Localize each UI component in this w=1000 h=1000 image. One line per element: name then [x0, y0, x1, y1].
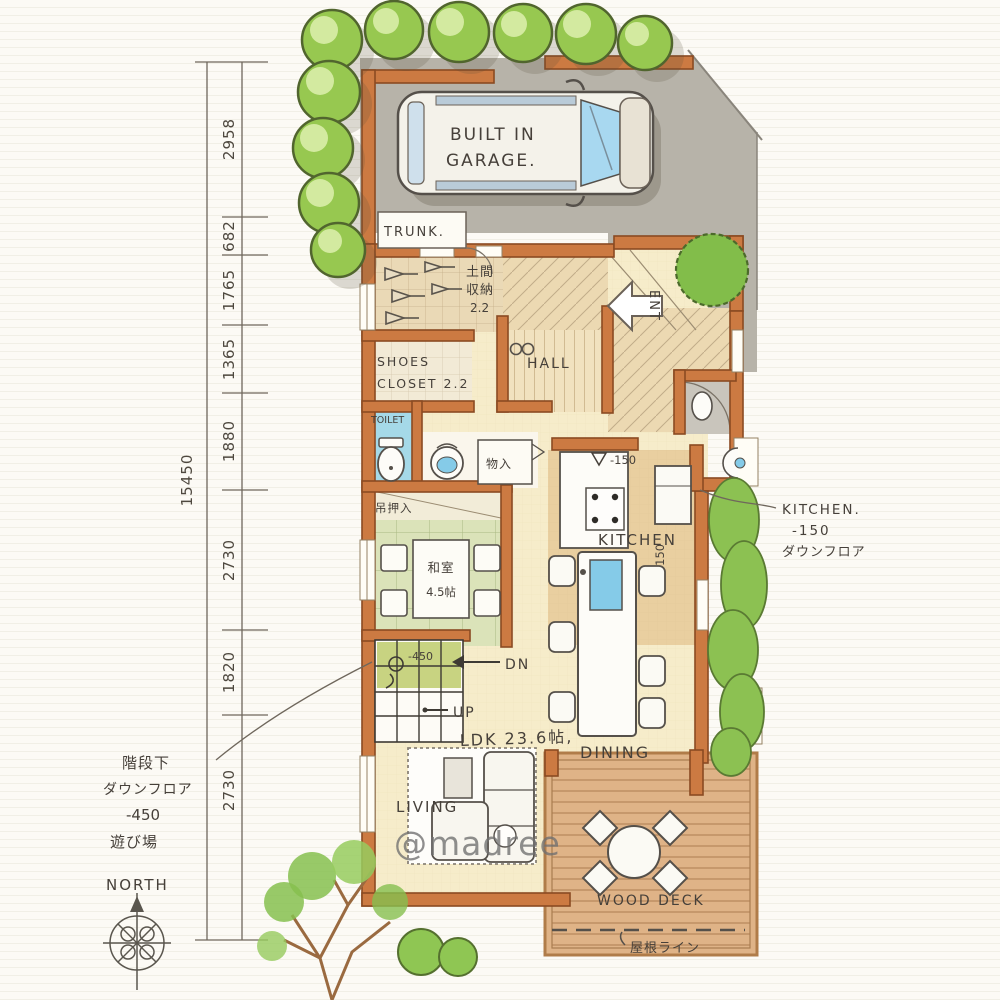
hanging-closet-label: 吊押入: [375, 501, 413, 515]
tatami-name: 和室: [427, 560, 454, 575]
side-table-icon: [444, 758, 472, 798]
roof-line-label: 屋根ライン: [630, 941, 700, 956]
doma-line1: 土間: [466, 265, 494, 280]
cushion-icon: [474, 590, 500, 616]
ldk-label: LDK 23.6帖,: [459, 727, 573, 750]
hall-label: HALL: [527, 356, 571, 372]
dim-total: 15450: [178, 454, 196, 507]
tatami-size: 4.5帖: [426, 585, 456, 599]
cushion-icon: [381, 545, 407, 571]
kitchen-note-3: ダウンフロア: [782, 545, 866, 560]
sink-icon: [590, 560, 622, 610]
stairs-up-label: UP: [453, 705, 476, 721]
wood-deck-label: WOOD DECK: [597, 893, 705, 909]
stairs-down-label: DN: [505, 657, 530, 673]
shoes-label-2: CLOSET 2.2: [377, 376, 469, 391]
deck-table-icon: [608, 826, 660, 878]
stairs-note-1: 階段下: [122, 754, 170, 772]
garage-label-line1: BUILT IN: [450, 125, 536, 145]
dim-segment: 682: [220, 220, 238, 252]
stairs-note-4: 遊び場: [110, 833, 158, 851]
bush-icon: [439, 938, 477, 976]
stairs-note-2: ダウンフロア: [103, 782, 193, 798]
garage-label-line2: GARAGE.: [446, 151, 537, 171]
doma-size: 2.2: [470, 301, 489, 315]
dim-segment: 1820: [220, 651, 238, 693]
dim-segment: 2730: [220, 539, 238, 581]
shoes-label-1: SHOES: [377, 354, 430, 369]
refrigerator-icon: [655, 466, 691, 524]
stove-icon: [586, 488, 624, 530]
dim-segment: 1765: [220, 269, 238, 311]
kitchen-label: KITCHEN: [598, 531, 677, 549]
cushion-icon: [381, 590, 407, 616]
dim-segment: 1365: [220, 338, 238, 380]
stairs-note-3: -450: [126, 806, 160, 824]
low-table-icon: [413, 540, 469, 618]
doma-line2: 収納: [466, 283, 494, 298]
cushion-icon: [474, 545, 500, 571]
north-label: NORTH: [106, 876, 169, 894]
wood-deck: WOOD DECK 屋根ライン: [545, 753, 757, 956]
entrance-label: ENT: [646, 290, 661, 322]
living-label: LIVING: [396, 798, 458, 816]
shrub-icon: [676, 234, 748, 306]
toilet-icon: [378, 447, 404, 481]
trunk-label: TRUNK.: [383, 225, 445, 240]
dim-segment: 2958: [220, 118, 238, 160]
dining-label: DINING: [580, 743, 650, 762]
kitchen-note-1: KITCHEN.: [782, 502, 861, 518]
stairs-pit-depth: -450: [408, 650, 433, 663]
floor-plan-page: WOOD DECK 屋根ライン: [0, 0, 1000, 1000]
storage-label: 物入: [486, 457, 512, 471]
dim-segment: 1880: [220, 420, 238, 462]
dim-segment: 2730: [220, 769, 238, 811]
toilet-label: TOILET: [370, 415, 404, 426]
car-icon: BUILT IN GARAGE.: [398, 80, 661, 206]
bush-icon: [398, 929, 444, 975]
kitchen-note-2: -150: [792, 523, 831, 539]
watermark: @madree: [394, 824, 561, 863]
floor-plan-drawing: WOOD DECK 屋根ライン: [0, 0, 1000, 1000]
kitchen-step-top: -150: [610, 453, 636, 467]
toilet-icon: [692, 392, 712, 420]
